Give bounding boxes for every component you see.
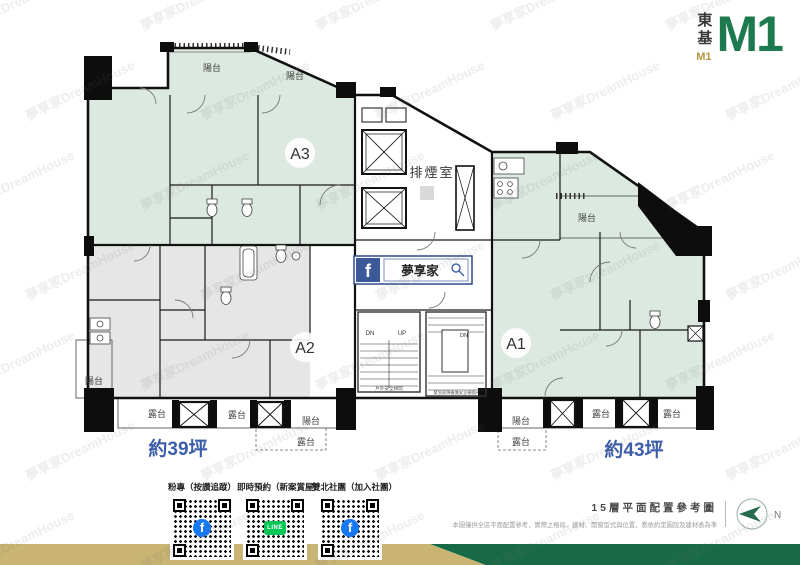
unit-a2-label: A2 bbox=[295, 340, 315, 357]
qr-code-facebook-group: f bbox=[318, 496, 382, 560]
search-banner-text: 夢享家 bbox=[401, 263, 439, 278]
compass-n-label: N bbox=[774, 510, 781, 521]
qr-block-line: 即時預約（新案賞屋） LINE bbox=[237, 481, 313, 560]
line-icon: LINE bbox=[264, 521, 286, 535]
company-name: 東基 bbox=[696, 12, 711, 48]
qr-label: 即時預約（新案賞屋） bbox=[237, 481, 313, 493]
divider bbox=[725, 501, 726, 527]
unit-a3-label: A3 bbox=[290, 146, 310, 163]
terrace-label: 露台 bbox=[148, 408, 166, 419]
balcony-label: 陽台 bbox=[286, 70, 304, 81]
qr-label: 粉專（按讚追蹤） bbox=[164, 481, 240, 493]
stair-up-label: UP bbox=[398, 331, 406, 337]
facebook-search-banner: f 夢享家 bbox=[354, 256, 472, 284]
qr-label: 雙北社團（加入社團） bbox=[312, 481, 388, 493]
qr-code-facebook: f bbox=[170, 496, 234, 560]
disclaimer-text: 本圖僅供全區平面配置參考，實際之格局、建材、開窗型式與位置，悉依約定圖說及建材表… bbox=[453, 520, 717, 529]
qr-block-community: 雙北社團（加入社團） f bbox=[312, 481, 388, 560]
compass: N bbox=[734, 496, 786, 532]
facebook-icon: f bbox=[193, 519, 211, 537]
terrace-label: 露台 bbox=[297, 436, 315, 447]
stair-dn-label: DN bbox=[460, 333, 468, 339]
plan-title: 15層平面配置參考圖 bbox=[453, 500, 717, 515]
terrace-label: 露台 bbox=[592, 408, 610, 419]
terrace-label: 露台 bbox=[512, 436, 530, 447]
unit-a1-label: A1 bbox=[506, 336, 526, 353]
logo-m1: M1 bbox=[717, 12, 782, 57]
gold-monogram: M1 bbox=[696, 51, 711, 63]
stair-caption: 戶外安全梯間 bbox=[375, 385, 403, 392]
smoke-room-label: 排煙室 bbox=[409, 165, 454, 180]
qr-block-fanpage: 粉專（按讚追蹤） f bbox=[164, 481, 240, 560]
area-size-texts: 約39坪 約43坪 bbox=[148, 437, 663, 461]
qr-code-line: LINE bbox=[243, 496, 307, 560]
area-a1-label: 約43坪 bbox=[604, 438, 663, 461]
bottom-bar-green bbox=[430, 544, 800, 565]
terrace-label: 露台 bbox=[663, 408, 681, 419]
facebook-icon: f bbox=[341, 519, 359, 537]
balcony-label: 陽台 bbox=[302, 415, 320, 426]
stair-dn-label: DN bbox=[366, 331, 375, 337]
balcony-label: 陽台 bbox=[203, 62, 221, 73]
balcony-label: 陽台 bbox=[512, 415, 530, 426]
balcony-label: 陽台 bbox=[85, 375, 103, 386]
balcony-label: 陽台 bbox=[578, 212, 596, 223]
footer-right: 15層平面配置參考圖 本圖僅供全區平面配置參考，實際之格局、建材、開窗型式與位置… bbox=[453, 496, 786, 532]
brand-logo: 東基 M1 M1 bbox=[696, 12, 782, 63]
facebook-f-glyph: f bbox=[365, 261, 372, 281]
area-a2-label: 約39坪 bbox=[148, 437, 207, 460]
floor-plan: A3 A2 A1 陽台 陽台 陽台 陽台 露台 露台 陽台 露台 陽台 露台 露… bbox=[0, 0, 800, 470]
floorplan-flyer: { "brand": { "company_vertical": "東基", "… bbox=[0, 0, 800, 565]
terrace-label: 露台 bbox=[228, 409, 246, 420]
stair-caption: 緊急昇降機兼安全梯間A bbox=[434, 389, 479, 396]
